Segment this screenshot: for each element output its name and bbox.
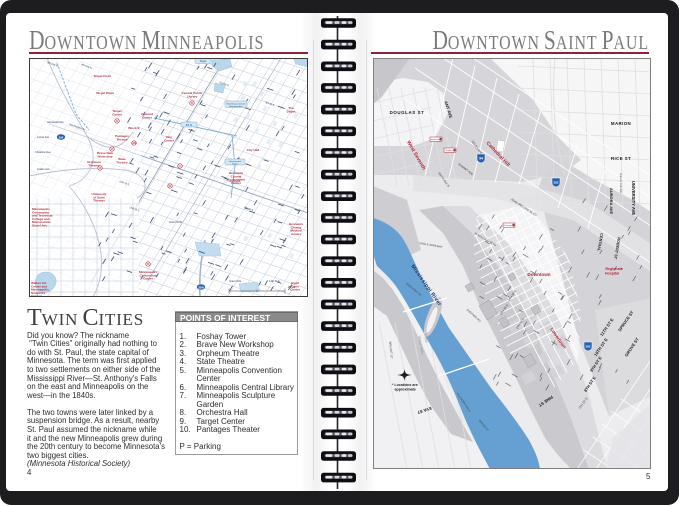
- svg-text:14th St E: 14th St E: [269, 279, 280, 283]
- svg-text:Linden Ave: Linden Ave: [37, 167, 50, 171]
- svg-text:Grant St W: Grant St W: [169, 220, 182, 224]
- svg-text:Hospital: Hospital: [605, 272, 619, 276]
- svg-text:Universityof SaintThomas: Universityof SaintThomas: [92, 192, 107, 203]
- svg-text:RICE ST: RICE ST: [611, 156, 631, 161]
- svg-text:Regional■: Regional■: [605, 267, 622, 271]
- svg-text:Downtown: Downtown: [527, 272, 550, 277]
- svg-text:Guthrie: Guthrie: [229, 179, 240, 183]
- svg-text:Target Plaza: Target Plaza: [96, 91, 114, 95]
- svg-text:OrpheumTheatre: OrpheumTheatre: [87, 160, 101, 167]
- svg-text:.25 mi: .25 mi: [287, 285, 296, 289]
- svg-text:St Joseph's: St Joseph's: [503, 224, 513, 227]
- svg-text:10: 10: [132, 141, 136, 145]
- svg-text:35W: 35W: [198, 285, 204, 289]
- svg-text:Grant St E: Grant St E: [229, 279, 241, 283]
- svg-text:Brave NewWorkshop: Brave NewWorkshop: [97, 151, 113, 158]
- svg-text:Chestnut Ave: Chestnut Ave: [35, 150, 51, 154]
- svg-text:94: 94: [479, 156, 483, 160]
- svg-text:UNIVERSITY AVE: UNIVERSITY AVE: [631, 181, 636, 216]
- svg-text:City Hall: City Hall: [247, 148, 260, 152]
- svg-text:Warehouse DistrictHennepin Ave: Warehouse DistrictHennepin Ave: [227, 103, 246, 108]
- svg-text:Block E: Block E: [128, 126, 139, 130]
- svg-text:394: 394: [59, 135, 64, 139]
- svg-text:Target: Target: [200, 60, 207, 63]
- svg-text:PantagesTheatre: PantagesTheatre: [115, 134, 129, 141]
- svg-text:Children's: Children's: [445, 150, 454, 152]
- svg-text:MARION: MARION: [611, 121, 631, 126]
- svg-text:DOUGLAS ST: DOUGLAS ST: [390, 110, 425, 115]
- svg-text:United Hosp: United Hosp: [430, 138, 442, 141]
- svg-text:35E: 35E: [554, 180, 559, 184]
- svg-text:* Locations are: * Locations are: [392, 383, 418, 387]
- svg-text:approximate: approximate: [395, 388, 416, 392]
- svg-text:Currie Ave: Currie Ave: [37, 135, 50, 139]
- svg-text:Target Field: Target Field: [93, 74, 110, 78]
- svg-text:Regency Com Apts: Regency Com Apts: [619, 173, 622, 194]
- svg-text:35E: 35E: [586, 344, 591, 348]
- svg-text:AURORA AVE: AURORA AVE: [609, 188, 614, 215]
- svg-text:CourtedCenter: CourtedCenter: [141, 112, 153, 119]
- svg-text:TargetCenter: TargetCenter: [112, 109, 123, 116]
- svg-text:5th St: 5th St: [186, 124, 193, 127]
- svg-text:Glenwood Ave: Glenwood Ave: [47, 120, 64, 124]
